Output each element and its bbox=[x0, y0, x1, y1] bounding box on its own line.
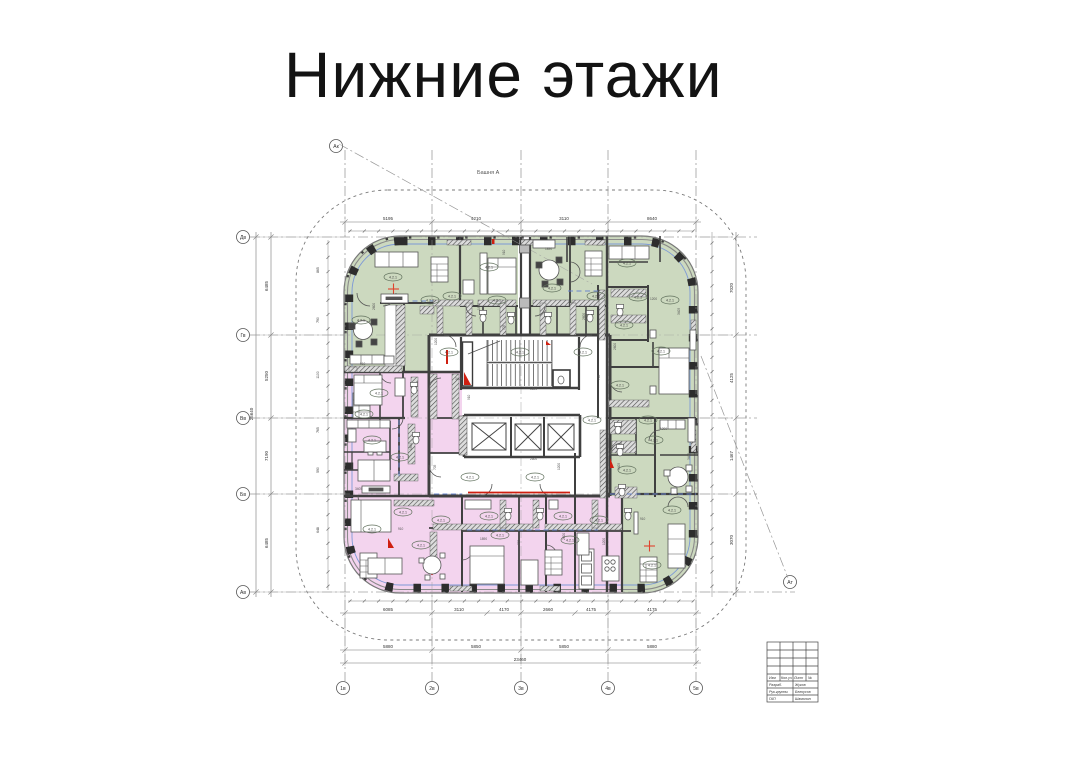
svg-text:Белоусов: Белоусов bbox=[795, 690, 811, 694]
svg-text:2600: 2600 bbox=[562, 533, 566, 540]
svg-text:1890: 1890 bbox=[477, 303, 481, 310]
svg-text:Ав: Ав bbox=[240, 590, 246, 596]
svg-text:Дв: Дв bbox=[240, 235, 246, 241]
svg-text:4.2.1: 4.2.1 bbox=[448, 294, 456, 298]
svg-text:6485: 6485 bbox=[264, 537, 269, 548]
svg-text:4.2.1: 4.2.1 bbox=[437, 518, 445, 522]
svg-text:4.2.1: 4.2.1 bbox=[368, 438, 376, 442]
svg-text:Рук.группы: Рук.группы bbox=[769, 690, 788, 694]
svg-text:4в: 4в bbox=[605, 686, 611, 692]
svg-text:4.2.1: 4.2.1 bbox=[592, 294, 600, 298]
svg-text:5195: 5195 bbox=[383, 216, 394, 221]
svg-text:1890: 1890 bbox=[545, 247, 552, 251]
svg-text:Башня А: Башня А bbox=[477, 170, 500, 176]
svg-text:705: 705 bbox=[502, 324, 506, 330]
svg-text:4.2.1: 4.2.1 bbox=[485, 265, 493, 269]
svg-text:Лист: Лист bbox=[793, 676, 803, 680]
svg-text:4.2.1: 4.2.1 bbox=[666, 298, 674, 302]
svg-text:1890: 1890 bbox=[530, 387, 537, 391]
svg-text:4.2.1: 4.2.1 bbox=[417, 543, 425, 547]
svg-text:4.2.1: 4.2.1 bbox=[566, 538, 574, 542]
svg-text:3405: 3405 bbox=[455, 377, 462, 381]
svg-text:910: 910 bbox=[467, 394, 471, 400]
svg-text:4.2.1: 4.2.1 bbox=[426, 298, 434, 302]
svg-text:2в: 2в bbox=[429, 686, 435, 692]
svg-text:5250: 5250 bbox=[264, 370, 269, 381]
svg-text:4.2.1: 4.2.1 bbox=[357, 318, 365, 322]
svg-text:4.2.1: 4.2.1 bbox=[375, 391, 383, 395]
svg-text:Жуков: Жуков bbox=[794, 683, 806, 687]
svg-text:4.2.1: 4.2.1 bbox=[623, 261, 631, 265]
svg-text:705: 705 bbox=[433, 464, 437, 470]
svg-text:590: 590 bbox=[316, 467, 320, 473]
svg-text:Разраб.: Разраб. bbox=[769, 683, 782, 687]
svg-text:Ат: Ат bbox=[787, 580, 793, 586]
svg-text:3405: 3405 bbox=[355, 487, 362, 491]
svg-text:1890: 1890 bbox=[480, 537, 487, 541]
svg-text:4.2.1: 4.2.1 bbox=[644, 418, 652, 422]
svg-text:765: 765 bbox=[316, 427, 320, 433]
svg-text:2600: 2600 bbox=[530, 457, 537, 461]
svg-text:1200: 1200 bbox=[660, 427, 667, 431]
svg-text:910: 910 bbox=[398, 527, 404, 531]
svg-text:№: № bbox=[808, 676, 812, 680]
svg-text:ГАП: ГАП bbox=[769, 697, 776, 701]
svg-text:4.2.1: 4.2.1 bbox=[466, 475, 474, 479]
svg-text:865: 865 bbox=[316, 267, 320, 273]
svg-text:4.2.1: 4.2.1 bbox=[548, 286, 556, 290]
svg-text:5880: 5880 bbox=[647, 644, 658, 649]
svg-text:910: 910 bbox=[502, 249, 506, 255]
svg-text:Ак: Ак bbox=[333, 144, 339, 150]
svg-text:1200: 1200 bbox=[602, 538, 606, 545]
svg-text:4.2.1: 4.2.1 bbox=[485, 514, 493, 518]
svg-text:Бв: Бв bbox=[240, 492, 246, 498]
svg-text:4.2.1: 4.2.1 bbox=[396, 455, 404, 459]
svg-text:8640: 8640 bbox=[647, 216, 658, 221]
svg-text:4.2.1: 4.2.1 bbox=[531, 475, 539, 479]
svg-text:1200: 1200 bbox=[650, 297, 657, 301]
svg-text:5850: 5850 bbox=[559, 644, 570, 649]
svg-text:1467: 1467 bbox=[729, 450, 734, 461]
svg-text:4.2.1: 4.2.1 bbox=[588, 418, 596, 422]
svg-text:4170: 4170 bbox=[499, 607, 510, 612]
svg-text:7020: 7020 bbox=[729, 282, 734, 293]
svg-text:648: 648 bbox=[316, 527, 320, 533]
svg-text:1в: 1в bbox=[340, 686, 346, 692]
svg-text:4.2.1: 4.2.1 bbox=[634, 295, 642, 299]
svg-text:4.2.1: 4.2.1 bbox=[493, 298, 501, 302]
svg-text:3070: 3070 bbox=[729, 534, 734, 545]
svg-text:5880: 5880 bbox=[383, 644, 394, 649]
svg-text:4.2.1: 4.2.1 bbox=[657, 349, 665, 353]
svg-text:5850: 5850 bbox=[471, 644, 482, 649]
svg-text:4.2.1: 4.2.1 bbox=[516, 350, 524, 354]
svg-text:4.2.1: 4.2.1 bbox=[668, 508, 676, 512]
svg-text:790: 790 bbox=[316, 317, 320, 323]
svg-text:2600: 2600 bbox=[372, 303, 376, 310]
svg-text:4.2.1: 4.2.1 bbox=[650, 438, 658, 442]
svg-text:23460: 23460 bbox=[514, 657, 527, 662]
svg-text:910: 910 bbox=[360, 362, 366, 366]
svg-text:6085: 6085 bbox=[383, 607, 394, 612]
svg-text:2600: 2600 bbox=[582, 313, 586, 320]
svg-text:4.2.1: 4.2.1 bbox=[445, 350, 453, 354]
svg-text:4.2.1: 4.2.1 bbox=[399, 510, 407, 514]
svg-text:Изм: Изм bbox=[769, 676, 776, 680]
svg-text:4175: 4175 bbox=[586, 607, 597, 612]
svg-text:2660: 2660 bbox=[543, 607, 554, 612]
svg-text:4.2.1: 4.2.1 bbox=[620, 323, 628, 327]
svg-text:4.2.1: 4.2.1 bbox=[360, 412, 368, 416]
svg-text:Нижние этажи: Нижние этажи bbox=[284, 39, 723, 111]
svg-text:Кол.уч: Кол.уч bbox=[781, 676, 792, 680]
svg-text:Вв: Вв bbox=[240, 416, 246, 422]
svg-text:4125: 4125 bbox=[729, 372, 734, 383]
svg-text:4.2.1: 4.2.1 bbox=[368, 527, 376, 531]
svg-text:910: 910 bbox=[640, 517, 646, 521]
svg-text:3110: 3110 bbox=[454, 607, 464, 612]
svg-text:4.2.1: 4.2.1 bbox=[559, 514, 567, 518]
svg-text:Гв: Гв bbox=[240, 333, 245, 339]
svg-text:4175: 4175 bbox=[647, 607, 658, 612]
svg-text:7190: 7190 bbox=[264, 450, 269, 461]
svg-text:2600: 2600 bbox=[613, 343, 617, 350]
svg-text:1100: 1100 bbox=[316, 371, 320, 378]
svg-text:705: 705 bbox=[517, 539, 521, 545]
svg-text:1200: 1200 bbox=[557, 463, 561, 470]
svg-text:4.2.1: 4.2.1 bbox=[579, 350, 587, 354]
svg-text:3405: 3405 bbox=[617, 463, 621, 470]
svg-text:4.2.1: 4.2.1 bbox=[389, 275, 397, 279]
svg-text:4.2.1: 4.2.1 bbox=[496, 533, 504, 537]
svg-text:3405: 3405 bbox=[677, 308, 681, 315]
svg-text:4.2.1: 4.2.1 bbox=[595, 518, 603, 522]
svg-text:705: 705 bbox=[597, 374, 601, 380]
svg-text:1200: 1200 bbox=[434, 338, 438, 345]
svg-text:3110: 3110 bbox=[559, 216, 569, 221]
svg-text:4.2.1: 4.2.1 bbox=[616, 383, 624, 387]
svg-text:3405: 3405 bbox=[687, 453, 691, 460]
svg-text:1890: 1890 bbox=[409, 443, 413, 450]
svg-text:4.2.1: 4.2.1 bbox=[648, 563, 656, 567]
svg-text:4.2.1: 4.2.1 bbox=[623, 468, 631, 472]
svg-text:6485: 6485 bbox=[264, 280, 269, 291]
svg-text:5в: 5в bbox=[693, 686, 699, 692]
svg-text:3в: 3в bbox=[518, 686, 524, 692]
svg-text:Шамолин: Шамолин bbox=[795, 697, 811, 701]
